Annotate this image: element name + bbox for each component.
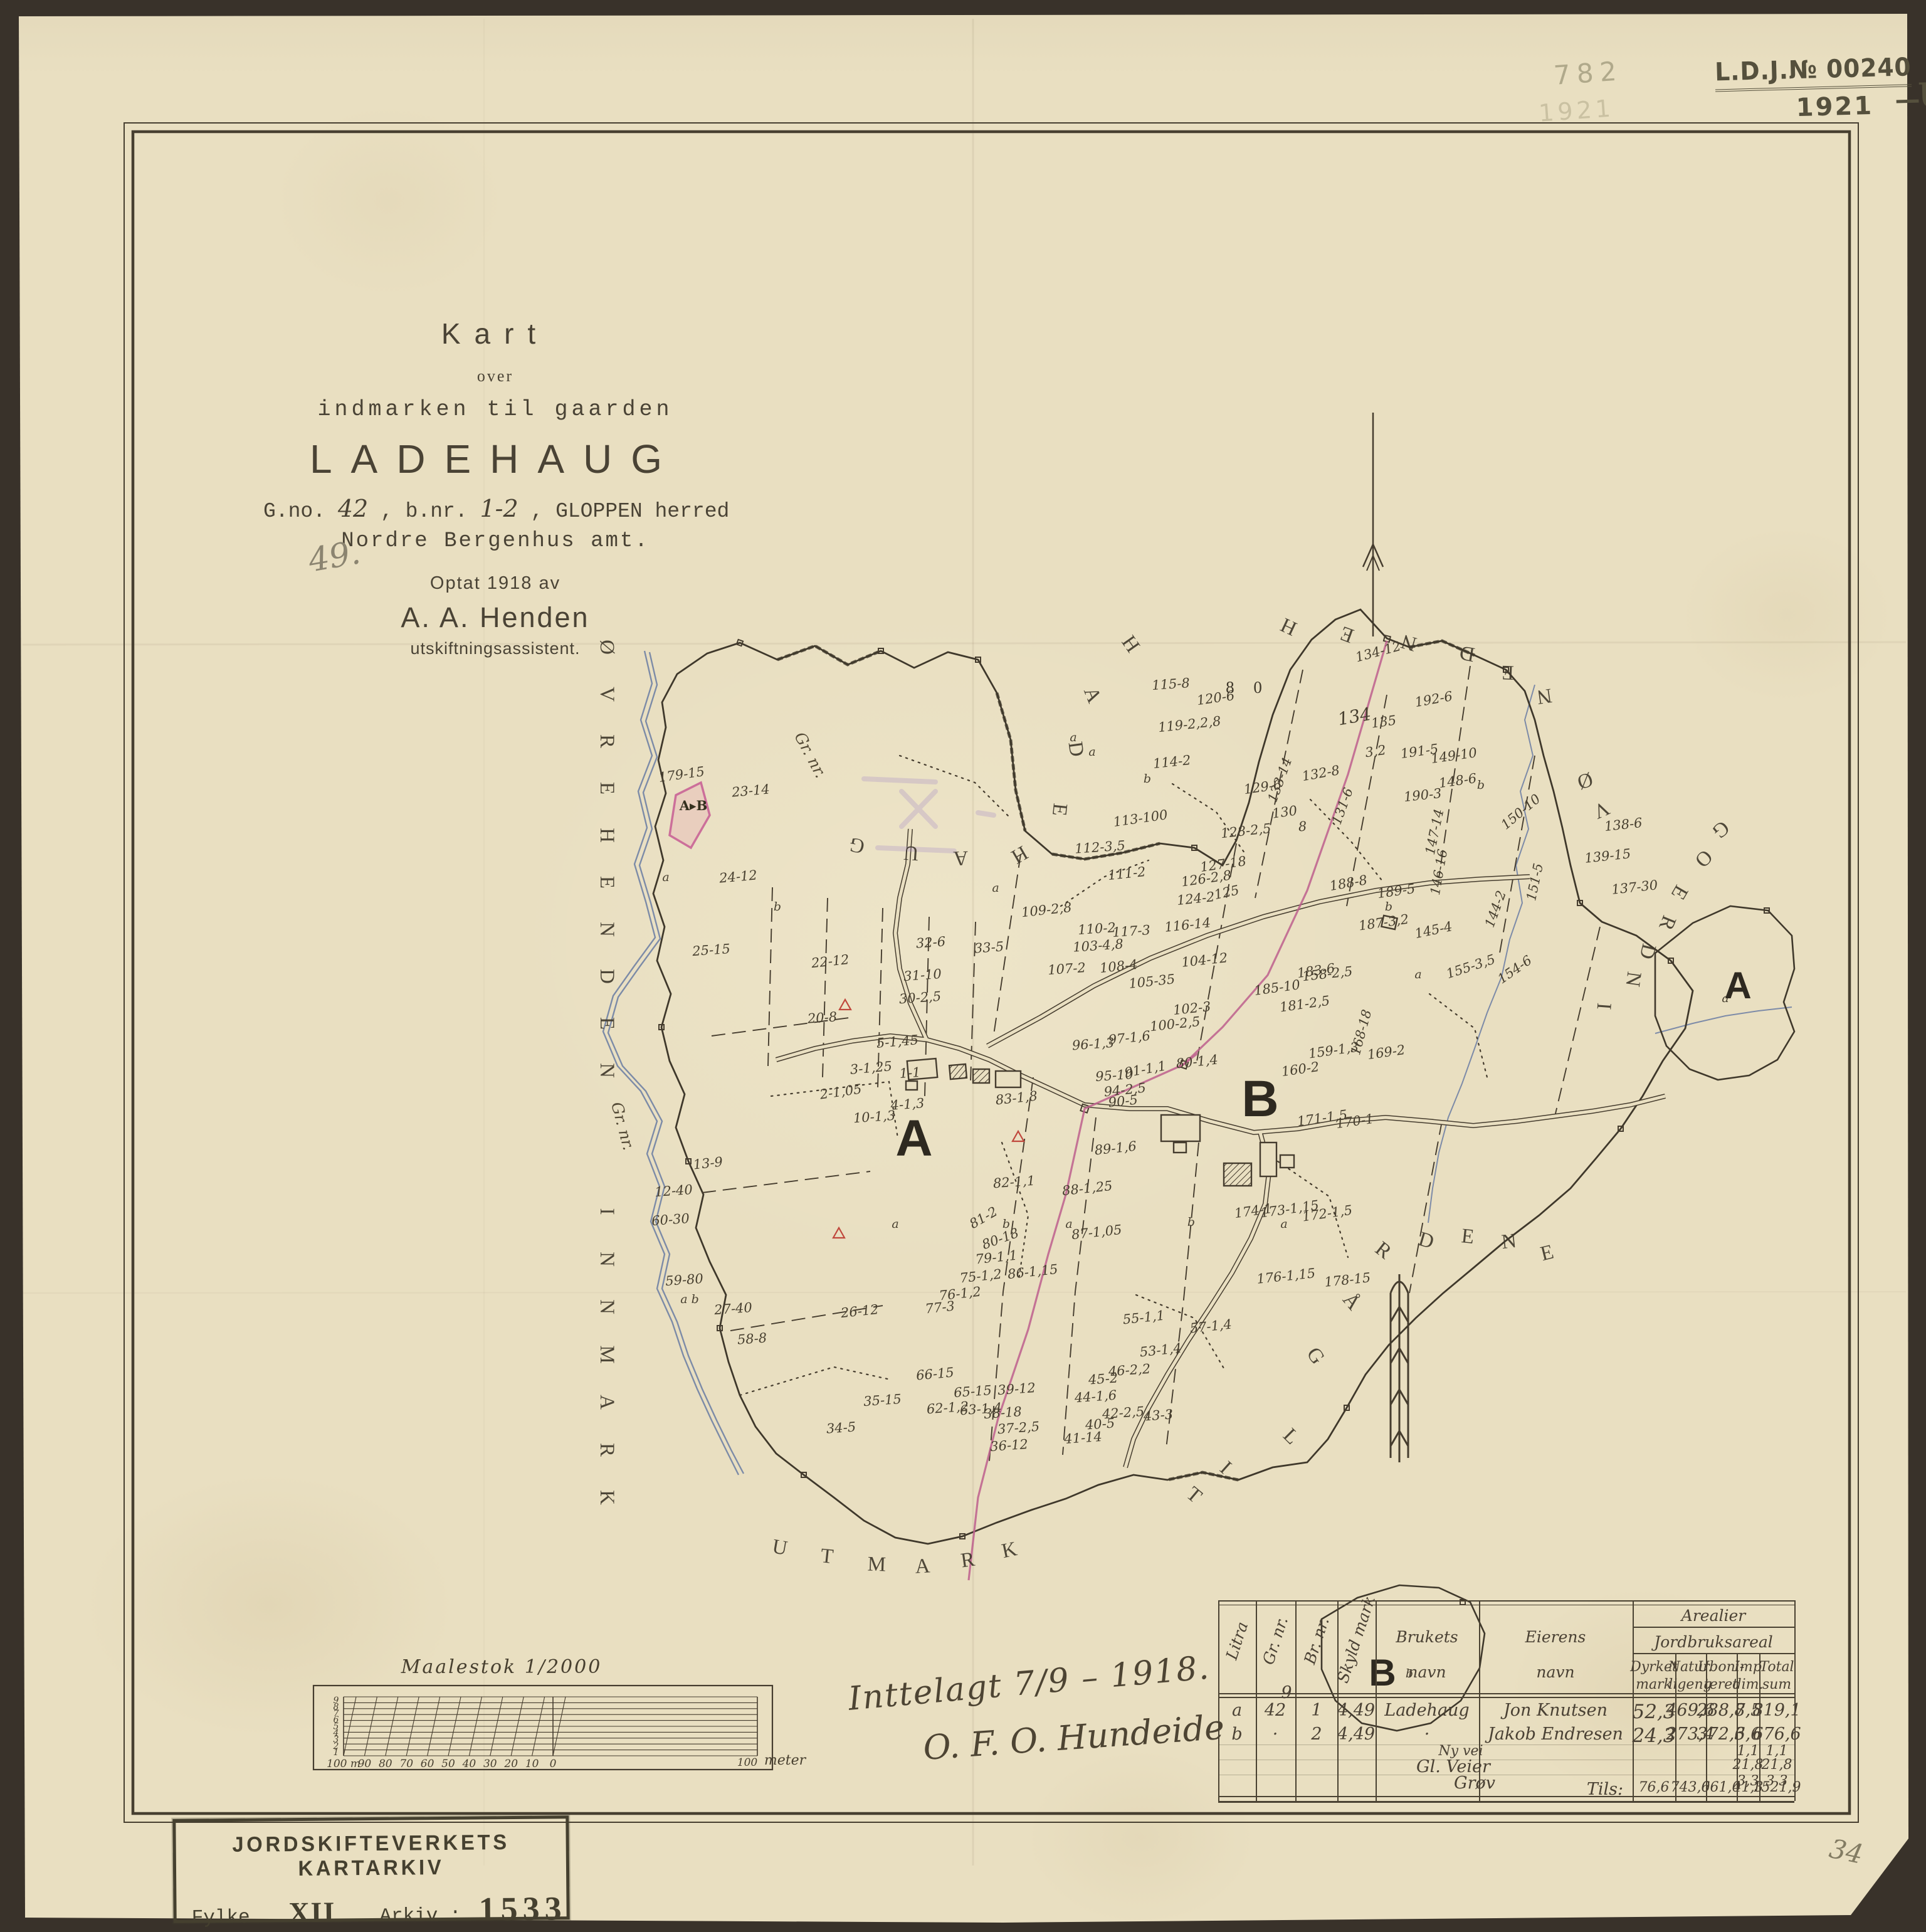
col-eier: navn	[1508, 1663, 1602, 1681]
col-eier: Eierens	[1508, 1628, 1602, 1646]
group-jordbruksareal: Jordbruksareal	[1619, 1633, 1808, 1651]
row-bruk: ·	[1374, 1724, 1480, 1744]
extra-row-val: 21,8	[1749, 1757, 1805, 1773]
table-line	[1633, 1653, 1794, 1654]
col-bruk: Brukets	[1380, 1628, 1474, 1646]
row-gnr-note: 9	[1268, 1683, 1305, 1702]
subcol: sum	[1749, 1677, 1805, 1692]
row-eier: Jakob Endresen	[1480, 1724, 1631, 1744]
table-line	[1633, 1627, 1794, 1628]
row-bruk: Ladehaug	[1374, 1701, 1480, 1720]
col-litra: Litra	[1214, 1593, 1260, 1689]
table-line	[1218, 1605, 1794, 1605]
table-line	[1218, 1796, 1794, 1797]
totals-val: 1521,9	[1745, 1780, 1808, 1795]
col-gnr: Gr. nr.	[1252, 1593, 1298, 1689]
subcol: Total	[1749, 1659, 1805, 1675]
table-line	[1218, 1801, 1794, 1803]
row-val: 819,1	[1745, 1701, 1808, 1720]
table-line	[1218, 1600, 1794, 1602]
group-arealier: Arealier	[1619, 1607, 1808, 1625]
areal-table: LitraGr. nr.Br. nr.Skyld markBruketsnavn…	[0, 0, 1926, 1932]
col-bruk: navn	[1380, 1663, 1474, 1681]
col-bnr: Br. nr.	[1293, 1593, 1340, 1689]
extra-row-label: Grøv	[1406, 1773, 1544, 1793]
row-val: 676,6	[1745, 1724, 1808, 1744]
scanned-map-sheet: ØVREHENDENINNMARKHADEHAUGHENDENØVGOERDNI…	[0, 0, 1926, 1932]
row-eier: Jon Knutsen	[1480, 1701, 1631, 1720]
